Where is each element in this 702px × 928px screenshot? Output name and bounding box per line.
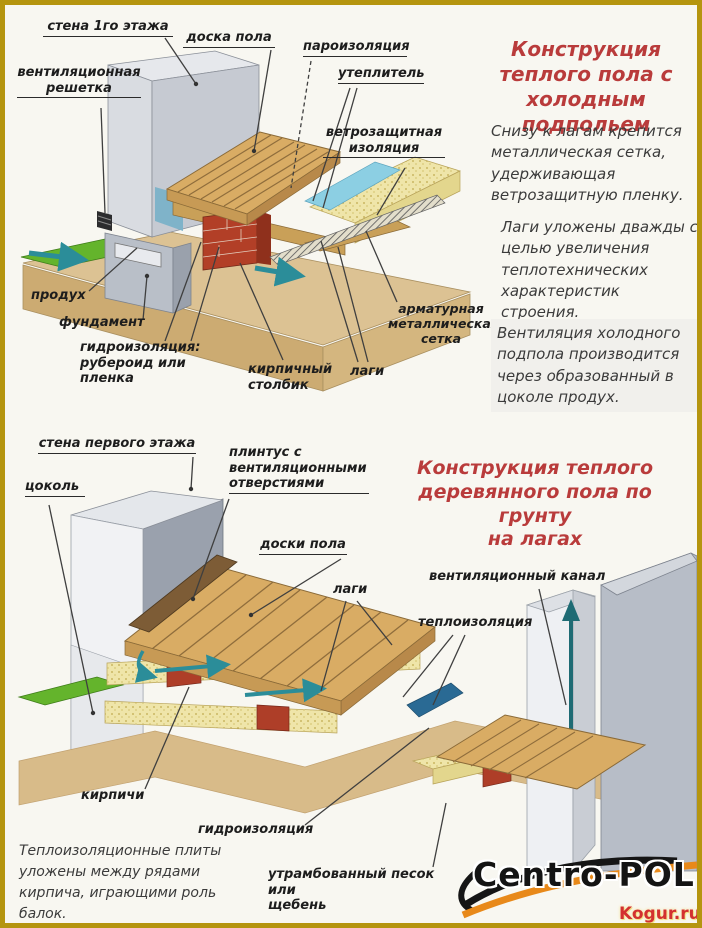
- label-d1-foundation: фундамент: [59, 315, 145, 331]
- label-d2-joists: лаги: [333, 582, 367, 598]
- label-d2-wall: стена первого этажа: [38, 436, 196, 454]
- label-d1-vapor-barrier: пароизоляция: [303, 39, 407, 57]
- diagram1-paragraph-1: Снизу к лагам крепится металлическая сет…: [491, 121, 697, 206]
- d2-right-wall-shape: [527, 553, 697, 871]
- label-d1-brick-column: кирпичный столбик: [248, 362, 343, 393]
- diagram2-title: Конструкция теплого деревянного пола по …: [395, 457, 675, 552]
- label-d1-rebar-mesh: арматурная металлическая сетка: [388, 301, 494, 346]
- label-d1-joists: лаги: [350, 364, 384, 380]
- label-d1-insulation: утеплитель: [338, 66, 424, 84]
- brand-logo-text: Centro-POL: [473, 858, 702, 891]
- diagram1-paragraph-3: Вентиляция холодного подпола производитс…: [491, 319, 699, 412]
- label-d2-bricks: кирпичи: [81, 788, 144, 804]
- label-d1-wall: стена 1го этажа: [43, 19, 173, 37]
- label-d2-waterproofing: гидроизоляция: [198, 822, 313, 838]
- diagram1-paragraph-2: Лаги уложены дважды с целью увеличения т…: [501, 217, 701, 323]
- label-d2-skirting: плинтус с вентиляционными отверстиями: [229, 445, 369, 494]
- label-d1-vent-opening: продух: [31, 288, 86, 304]
- label-d2-sand: утрамбованный песок или щебень: [268, 867, 464, 914]
- label-d2-thermal-insulation: теплоизоляция: [418, 615, 538, 631]
- label-d2-vent-channel: вентиляционный канал: [429, 569, 609, 585]
- label-d2-floor-boards: доски пола: [259, 537, 347, 555]
- label-d1-floor-board: доска пола: [183, 30, 275, 48]
- label-d1-wind-protection: ветрозащитная изоляция: [323, 125, 445, 158]
- label-d1-vent-grille: вентиляционная решетка: [17, 65, 141, 98]
- label-d2-plinth: цоколь: [25, 479, 85, 497]
- infographic-poster: Конструкция теплого пола с холодным подп…: [0, 0, 702, 928]
- label-d1-waterproofing: гидроизоляция: рубероид или пленка: [80, 340, 240, 387]
- watermark-text: Kogur.ru: [619, 906, 701, 923]
- diagram2-note: Теплоизоляционные плиты уложены между ря…: [19, 841, 249, 925]
